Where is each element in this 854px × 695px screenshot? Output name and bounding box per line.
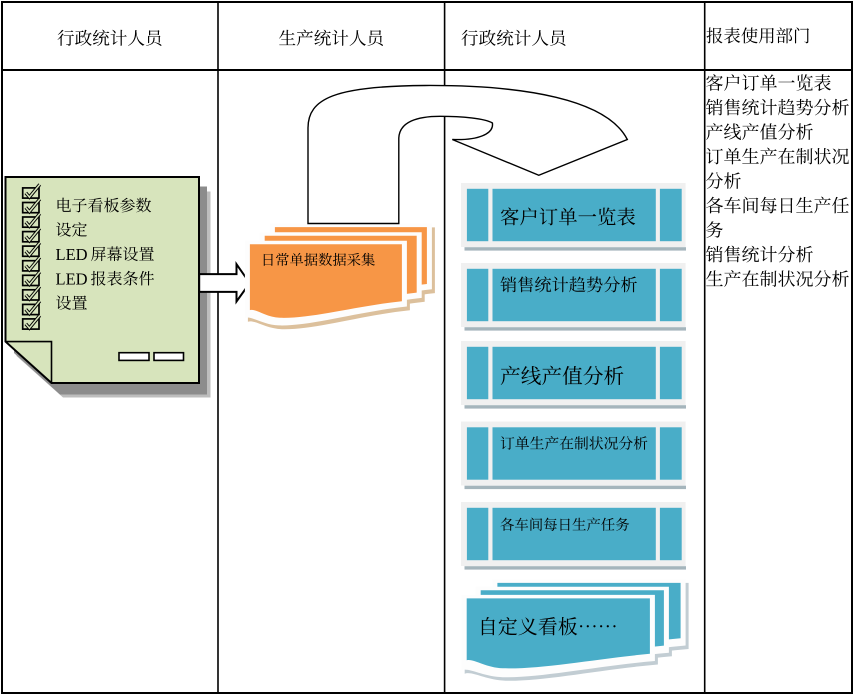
- svg-text:LED: LED: [56, 269, 88, 288]
- svg-text:LED: LED: [56, 245, 88, 264]
